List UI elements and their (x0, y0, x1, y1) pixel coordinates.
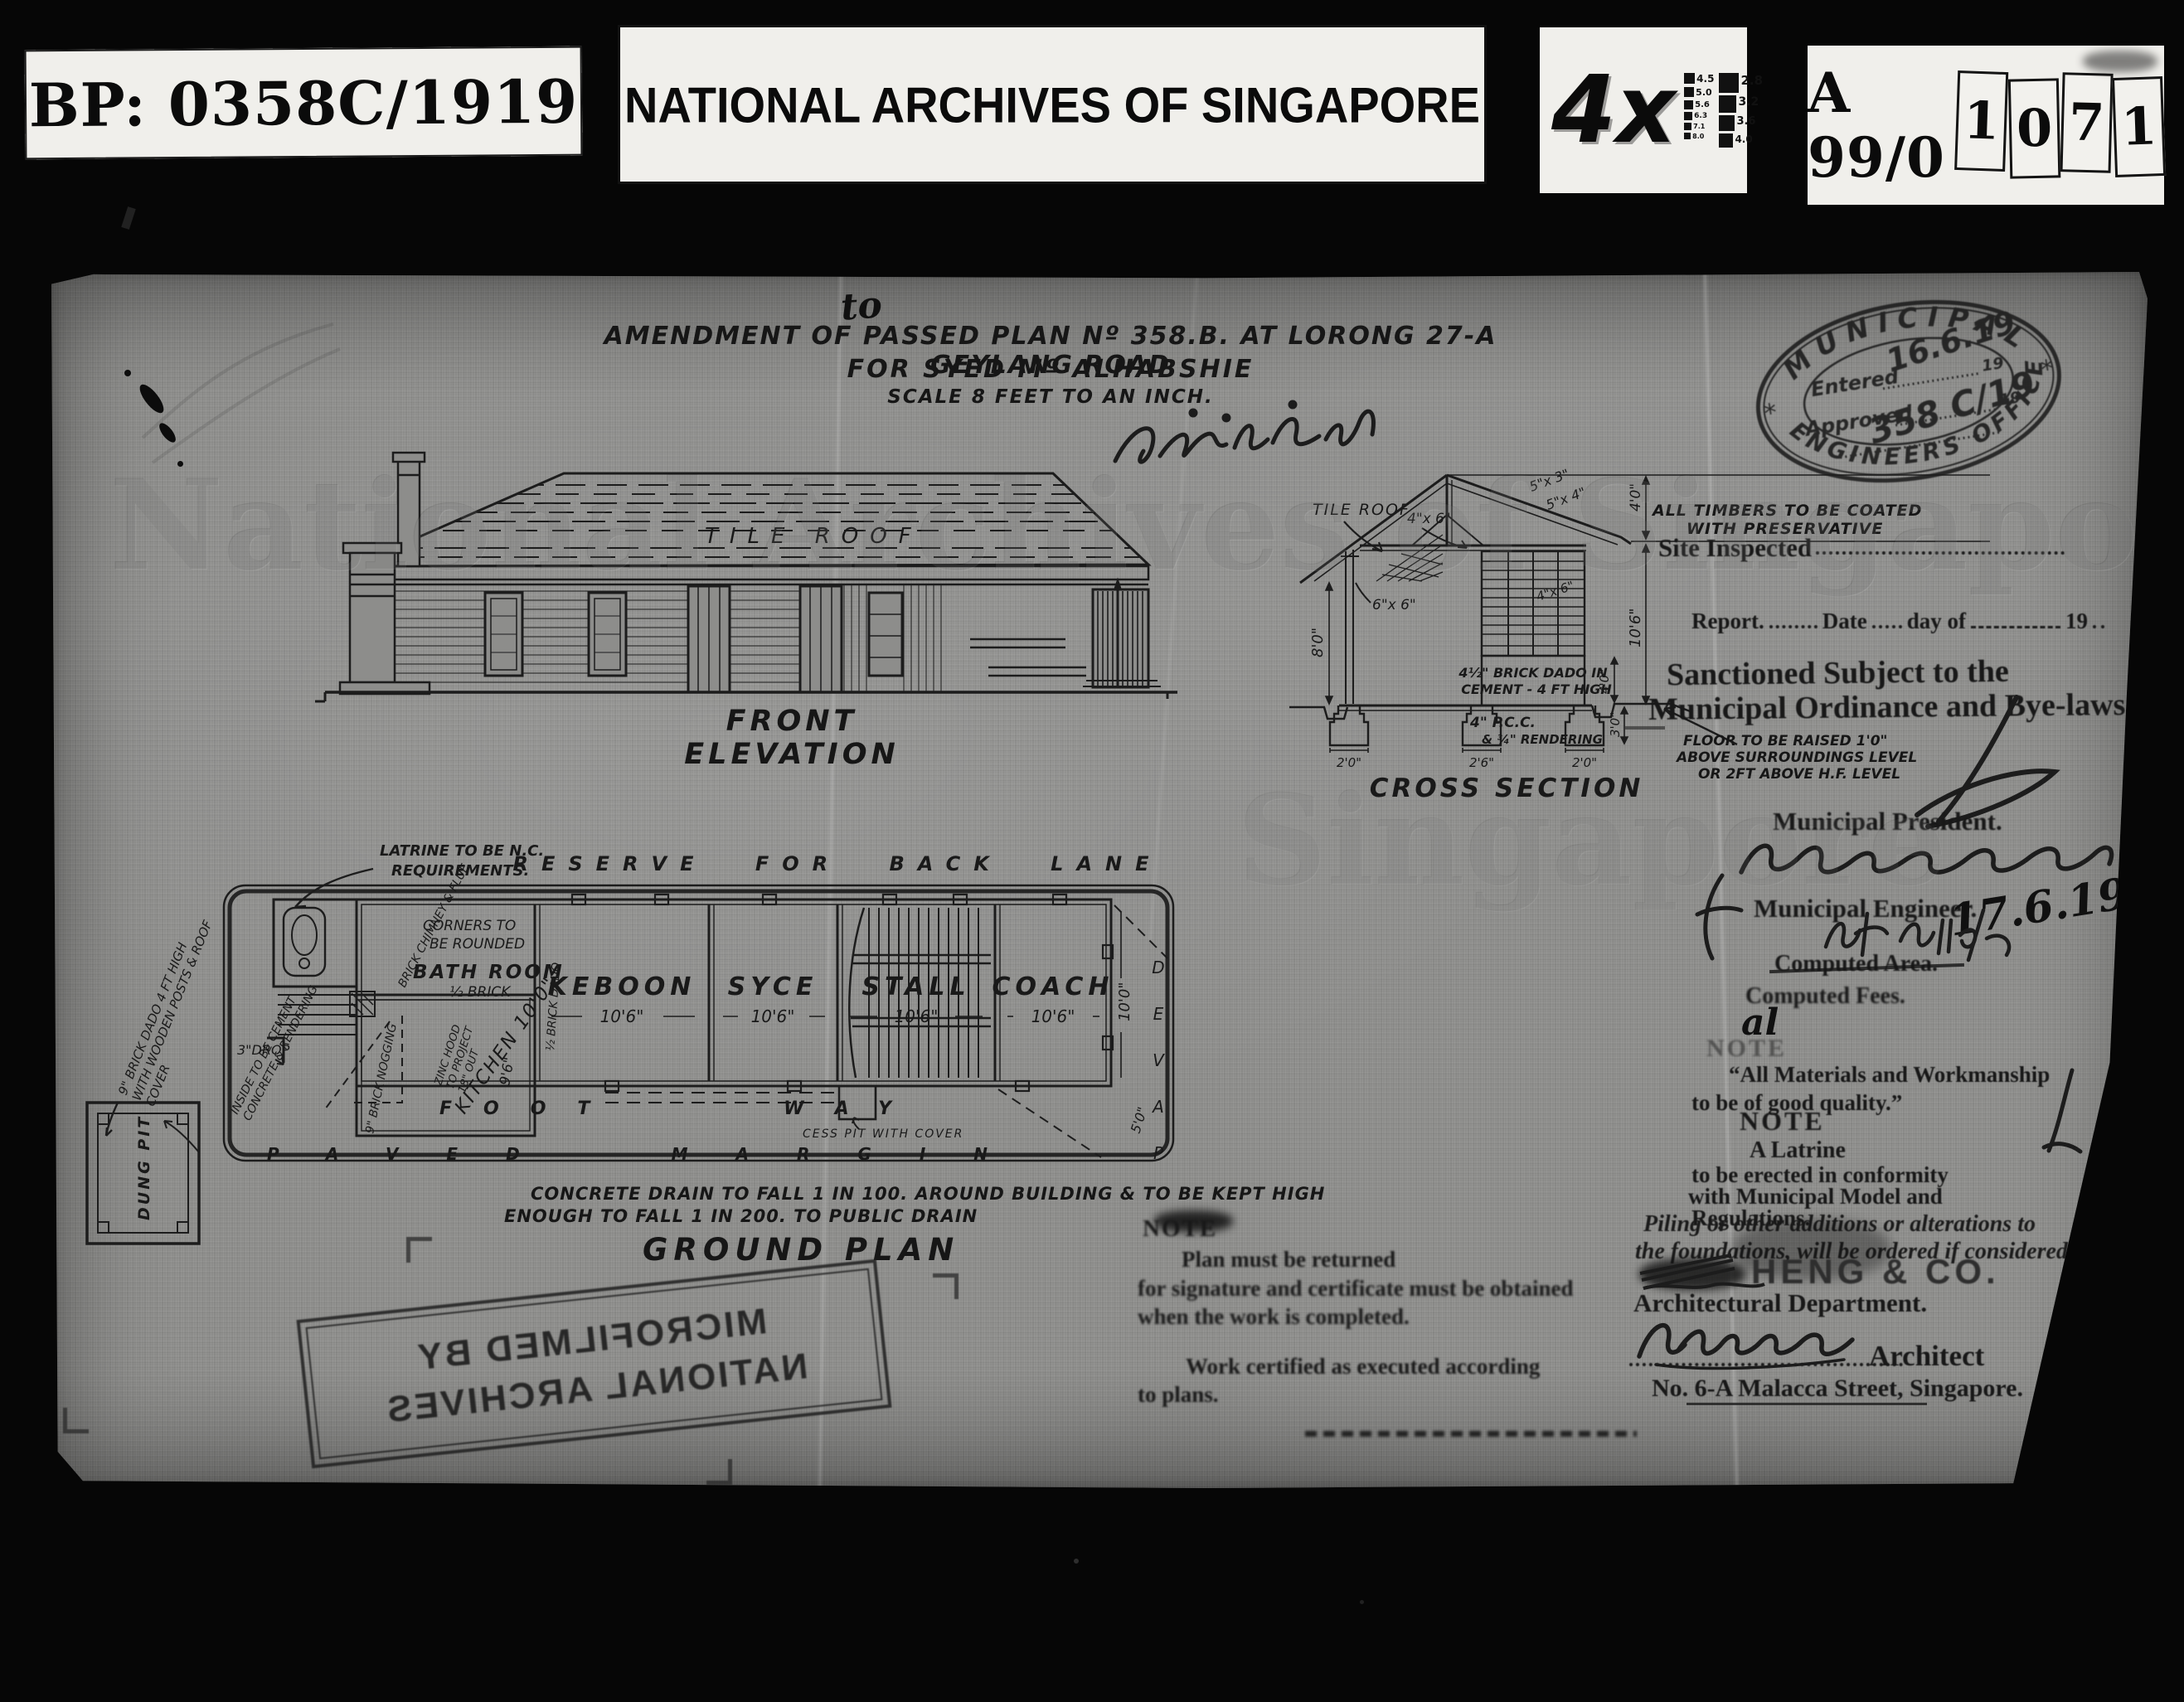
cesspit (605, 905, 1167, 1157)
half-brick-label: ½ BRICK (449, 984, 512, 1001)
dust-speck (1360, 1600, 1364, 1604)
architect-address: No. 6-A Malacca Street, Singapore. (1652, 1375, 2023, 1403)
footing-dim: 2'6" (1469, 755, 1494, 770)
reel-digit-slip: 7 (2060, 72, 2113, 173)
microfilm-stamp-line1: MICROFILMED BY (378, 1292, 806, 1386)
reel-number-card: A 99/0 1 0 7 1 (1808, 46, 2164, 205)
room-name: COACH (993, 972, 1114, 1001)
drain-note-line2: ENOUGH TO FALL 1 IN 200. TO PUBLIC DRAIN (504, 1206, 978, 1226)
front-elevation-caption: FRONT ELEVATION (618, 705, 966, 771)
svg-text:WITH WOODEN POSTS & ROOF: WITH WOODEN POSTS & ROOF (129, 918, 216, 1103)
test-value: 6.3 (1694, 112, 1707, 120)
reel-number-prefix: A 99/0 (1808, 61, 1954, 190)
materials-note-line1: “All Materials and Workmanship (1729, 1062, 2050, 1088)
dust-speck (1074, 1559, 1079, 1564)
municipal-engineers-office-stamp: MUNICIPAL ENGINEERS OFFICE ** Entered 19… (1739, 275, 2080, 509)
paved-letter: A (1151, 1097, 1164, 1117)
rafter-dim: 5"x 4" (1544, 484, 1588, 513)
note-label: NOTE (1143, 1215, 1217, 1243)
magnification-card: 4x 4.5 5.0 5.6 6.3 7.1 8.0 2.8 3.2 3.6 4… (1540, 27, 1747, 193)
test-value: 3.6 (1736, 115, 1755, 128)
post-dim: 6"x 6" (1372, 597, 1416, 613)
room-dim: 10'6" (1031, 1006, 1075, 1026)
entered-label: Entered (1809, 365, 1900, 401)
dado-cover-note: 9" BRICK DADO 4 FT HIGH WITH WOODEN POST… (115, 912, 229, 1108)
eave-fascia (352, 566, 1148, 584)
test-value: 3.2 (1738, 95, 1759, 109)
room-dim: 10'6" (600, 1006, 644, 1026)
note-label: NOTE (1706, 1035, 1787, 1063)
site-inspected-row: Site Inspected (1658, 533, 2065, 563)
microfilmed-by-stamp: MICROFILMED BY NATIONAL ARCHIVES (297, 1259, 892, 1468)
paved-letter: V (1153, 1050, 1165, 1070)
plan-title-line2: FOR SYED Mº ALHABSHIE (595, 355, 1507, 384)
wall-planks (1482, 551, 1585, 656)
resolution-test-chart: 4.5 5.0 5.6 6.3 7.1 8.0 2.8 3.2 3.6 4.0 (1684, 73, 1763, 148)
return-note-line2: for signature and certificate must be ob… (1138, 1276, 1573, 1302)
cross-section-labels: TILE ROOF 5"x 3" 5"x 4" 4"x 6" 4"x 6" 6"… (1309, 466, 1644, 803)
floor-note: & ¾" RENDERING (1482, 732, 1603, 747)
certified-note-line1: Work certified as executed according (1186, 1354, 1540, 1380)
floor-raised-note-line1: FLOOR TO BE RAISED 1'0" (1683, 733, 1887, 749)
signature-dotted-line (1629, 1363, 1903, 1366)
door (800, 586, 842, 692)
gable-lattice (1376, 535, 1443, 581)
firm-name-stamp: HENG & CO. (1751, 1252, 2000, 1292)
ground-plan-caption: GROUND PLAN (643, 1232, 959, 1268)
computed-area-stamp: Computed Area. (1774, 951, 1938, 977)
address-underline (1687, 1403, 1927, 1405)
room-dim: 10'6" (751, 1006, 795, 1026)
test-value: 4.5 (1696, 73, 1714, 85)
bp-reference-label: BP: 0358C/1919 (28, 65, 578, 140)
room-dim: 10'6" (895, 1006, 939, 1026)
test-chart-right-column: 2.8 3.2 3.6 4.0 (1719, 73, 1763, 148)
paved-margin-label: PAVED MARGIN (267, 1144, 1036, 1164)
roof-label: TILE ROOF (705, 524, 923, 549)
underline-mark (1625, 726, 1665, 730)
certified-note-line2: to plans. (1138, 1382, 1219, 1408)
room-labels: KEBOON 10'6" SYCE 10'6" STALL 10'6" COAC… (548, 972, 1114, 1026)
sanctioned-line1: Sanctioned Subject to the (1667, 653, 2009, 693)
checkmark-scribble (2037, 1066, 2095, 1166)
report-row: Report. Date day of 19 (1691, 609, 2104, 634)
site-inspected-label: Site Inspected (1658, 533, 1812, 562)
footway-label: FOOT WAY (439, 1098, 923, 1119)
floor-raised-note-line3: OR 2FT ABOVE H.F. LEVEL (1698, 766, 1900, 783)
film-scratch (121, 206, 136, 230)
dado-note: CEMENT - 4 FT HIGH (1461, 681, 1612, 697)
paved-letter: D (1152, 958, 1164, 977)
faint-pencil-scribble (126, 301, 358, 475)
engineer-signature-flourish (1687, 869, 1750, 964)
room-name: STALL (861, 972, 970, 1001)
timber-dim: 4"x 6" (1407, 511, 1451, 527)
test-value: 8.0 (1692, 133, 1704, 140)
roof-height-dim: 4'0" (1628, 483, 1644, 512)
cesspit-label: CESS PIT WITH COVER (803, 1127, 963, 1141)
test-value: 7.1 (1693, 123, 1705, 130)
margin-dim: 5'0" (1128, 1105, 1151, 1135)
plan-sheet: National Archives of Singapore Singapore… (51, 272, 2148, 1488)
microfilm-stamp-line2: NATIONAL ARCHIVES (383, 1341, 811, 1435)
drain-note-line1: CONCRETE DRAIN TO FALL 1 IN 100. AROUND … (531, 1184, 1325, 1204)
registration-mark (933, 1273, 959, 1299)
paved-letter: E (1153, 1004, 1164, 1024)
wall-height-dim: 10'6" (1627, 608, 1644, 647)
brick-dado-wall (1482, 656, 1585, 706)
reserve-back-lane-label: RESERVE FOR BACK LANE (512, 852, 1162, 875)
paved-letter: P (1153, 1143, 1164, 1163)
window (869, 593, 902, 676)
corners-note-line2: BE ROUNDED (430, 936, 525, 953)
room-name: SYCE (728, 972, 818, 1001)
ground-dim: 3'0" (1608, 712, 1623, 737)
archive-title: NATIONAL ARCHIVES OF SINGAPORE (624, 75, 1480, 133)
return-note-line1: Plan must be returned (1182, 1247, 1395, 1273)
reel-digit-slip: 1 (1955, 70, 2009, 172)
microfilm-scan-page: { "header": { "bp_label": "BP: 0358C/191… (0, 0, 2184, 1702)
test-value: 5.0 (1696, 87, 1712, 98)
dado-note: 4½" BRICK DADO IN (1458, 665, 1608, 681)
day-of-label: day of (1907, 609, 1966, 634)
svg-text:*: * (1762, 398, 1779, 429)
smudged-dotted-line (1305, 1431, 1637, 1437)
registration-mark (406, 1237, 432, 1263)
window (589, 593, 626, 676)
floor-note: 4" P.C.C. (1469, 715, 1536, 731)
timber-note-line1: ALL TIMBERS TO BE COATED (1653, 502, 1922, 520)
cross-section-caption: CROSS SECTION (1370, 773, 1644, 803)
footing-dim: 2'0" (1572, 755, 1597, 770)
report-label: Report. (1691, 609, 1764, 634)
test-chart-left-column: 4.5 5.0 5.6 6.3 7.1 8.0 (1684, 73, 1714, 148)
date-label: Date (1822, 609, 1867, 634)
ink-speckle (2083, 51, 2157, 72)
depth-dim: 10'0" (1116, 982, 1133, 1021)
room-name: KEBOON (548, 972, 696, 1001)
note-label: NOTE (1740, 1106, 1825, 1137)
bp-reference-card: BP: 0358C/1919 (25, 46, 583, 160)
dung-pit-label: DUNG PIT (135, 1115, 153, 1220)
timber-dim: 4"x 6" (1535, 578, 1576, 604)
archive-title-card: NATIONAL ARCHIVES OF SINGAPORE (618, 25, 1487, 184)
registration-mark (63, 1408, 89, 1433)
front-elevation-drawing: TILE ROOF (315, 450, 1194, 707)
year-suffix: 19 (2065, 609, 2088, 634)
reel-digit-slip: 0 (2007, 78, 2060, 178)
dung-pit: DUNG PIT (87, 1103, 199, 1244)
architect-signature (1627, 1305, 1892, 1380)
floor-raised-note-line2: ABOVE SURROUNDINGS LEVEL (1677, 749, 1917, 766)
ground-line (315, 692, 1177, 701)
magnification-value: 4x (1551, 56, 1676, 164)
height-dim: 8'0" (1309, 628, 1327, 657)
veranda-post (1341, 550, 1359, 704)
door (688, 586, 730, 692)
return-note-line3: when the work is completed. (1138, 1304, 1410, 1330)
test-value: 4.0 (1735, 133, 1752, 145)
roof-label: TILE ROOF (1313, 501, 1410, 519)
test-value: 2.8 (1740, 73, 1763, 88)
window (485, 593, 522, 676)
slat-fence (1093, 579, 1148, 687)
nogging-note: 9" BRICK NOGGING (363, 1022, 400, 1135)
latrine-conformity-line1: A Latrine (1750, 1137, 1846, 1164)
test-value: 5.6 (1695, 100, 1710, 109)
architect-label: Architect (1869, 1340, 1984, 1373)
footing-dim: 2'0" (1337, 755, 1361, 770)
registration-mark (706, 1459, 732, 1485)
latrine-note-line1: LATRINE TO BE N.C. (380, 842, 544, 860)
reel-digit-slip: 1 (2112, 76, 2166, 177)
porch-rails (970, 639, 1086, 676)
